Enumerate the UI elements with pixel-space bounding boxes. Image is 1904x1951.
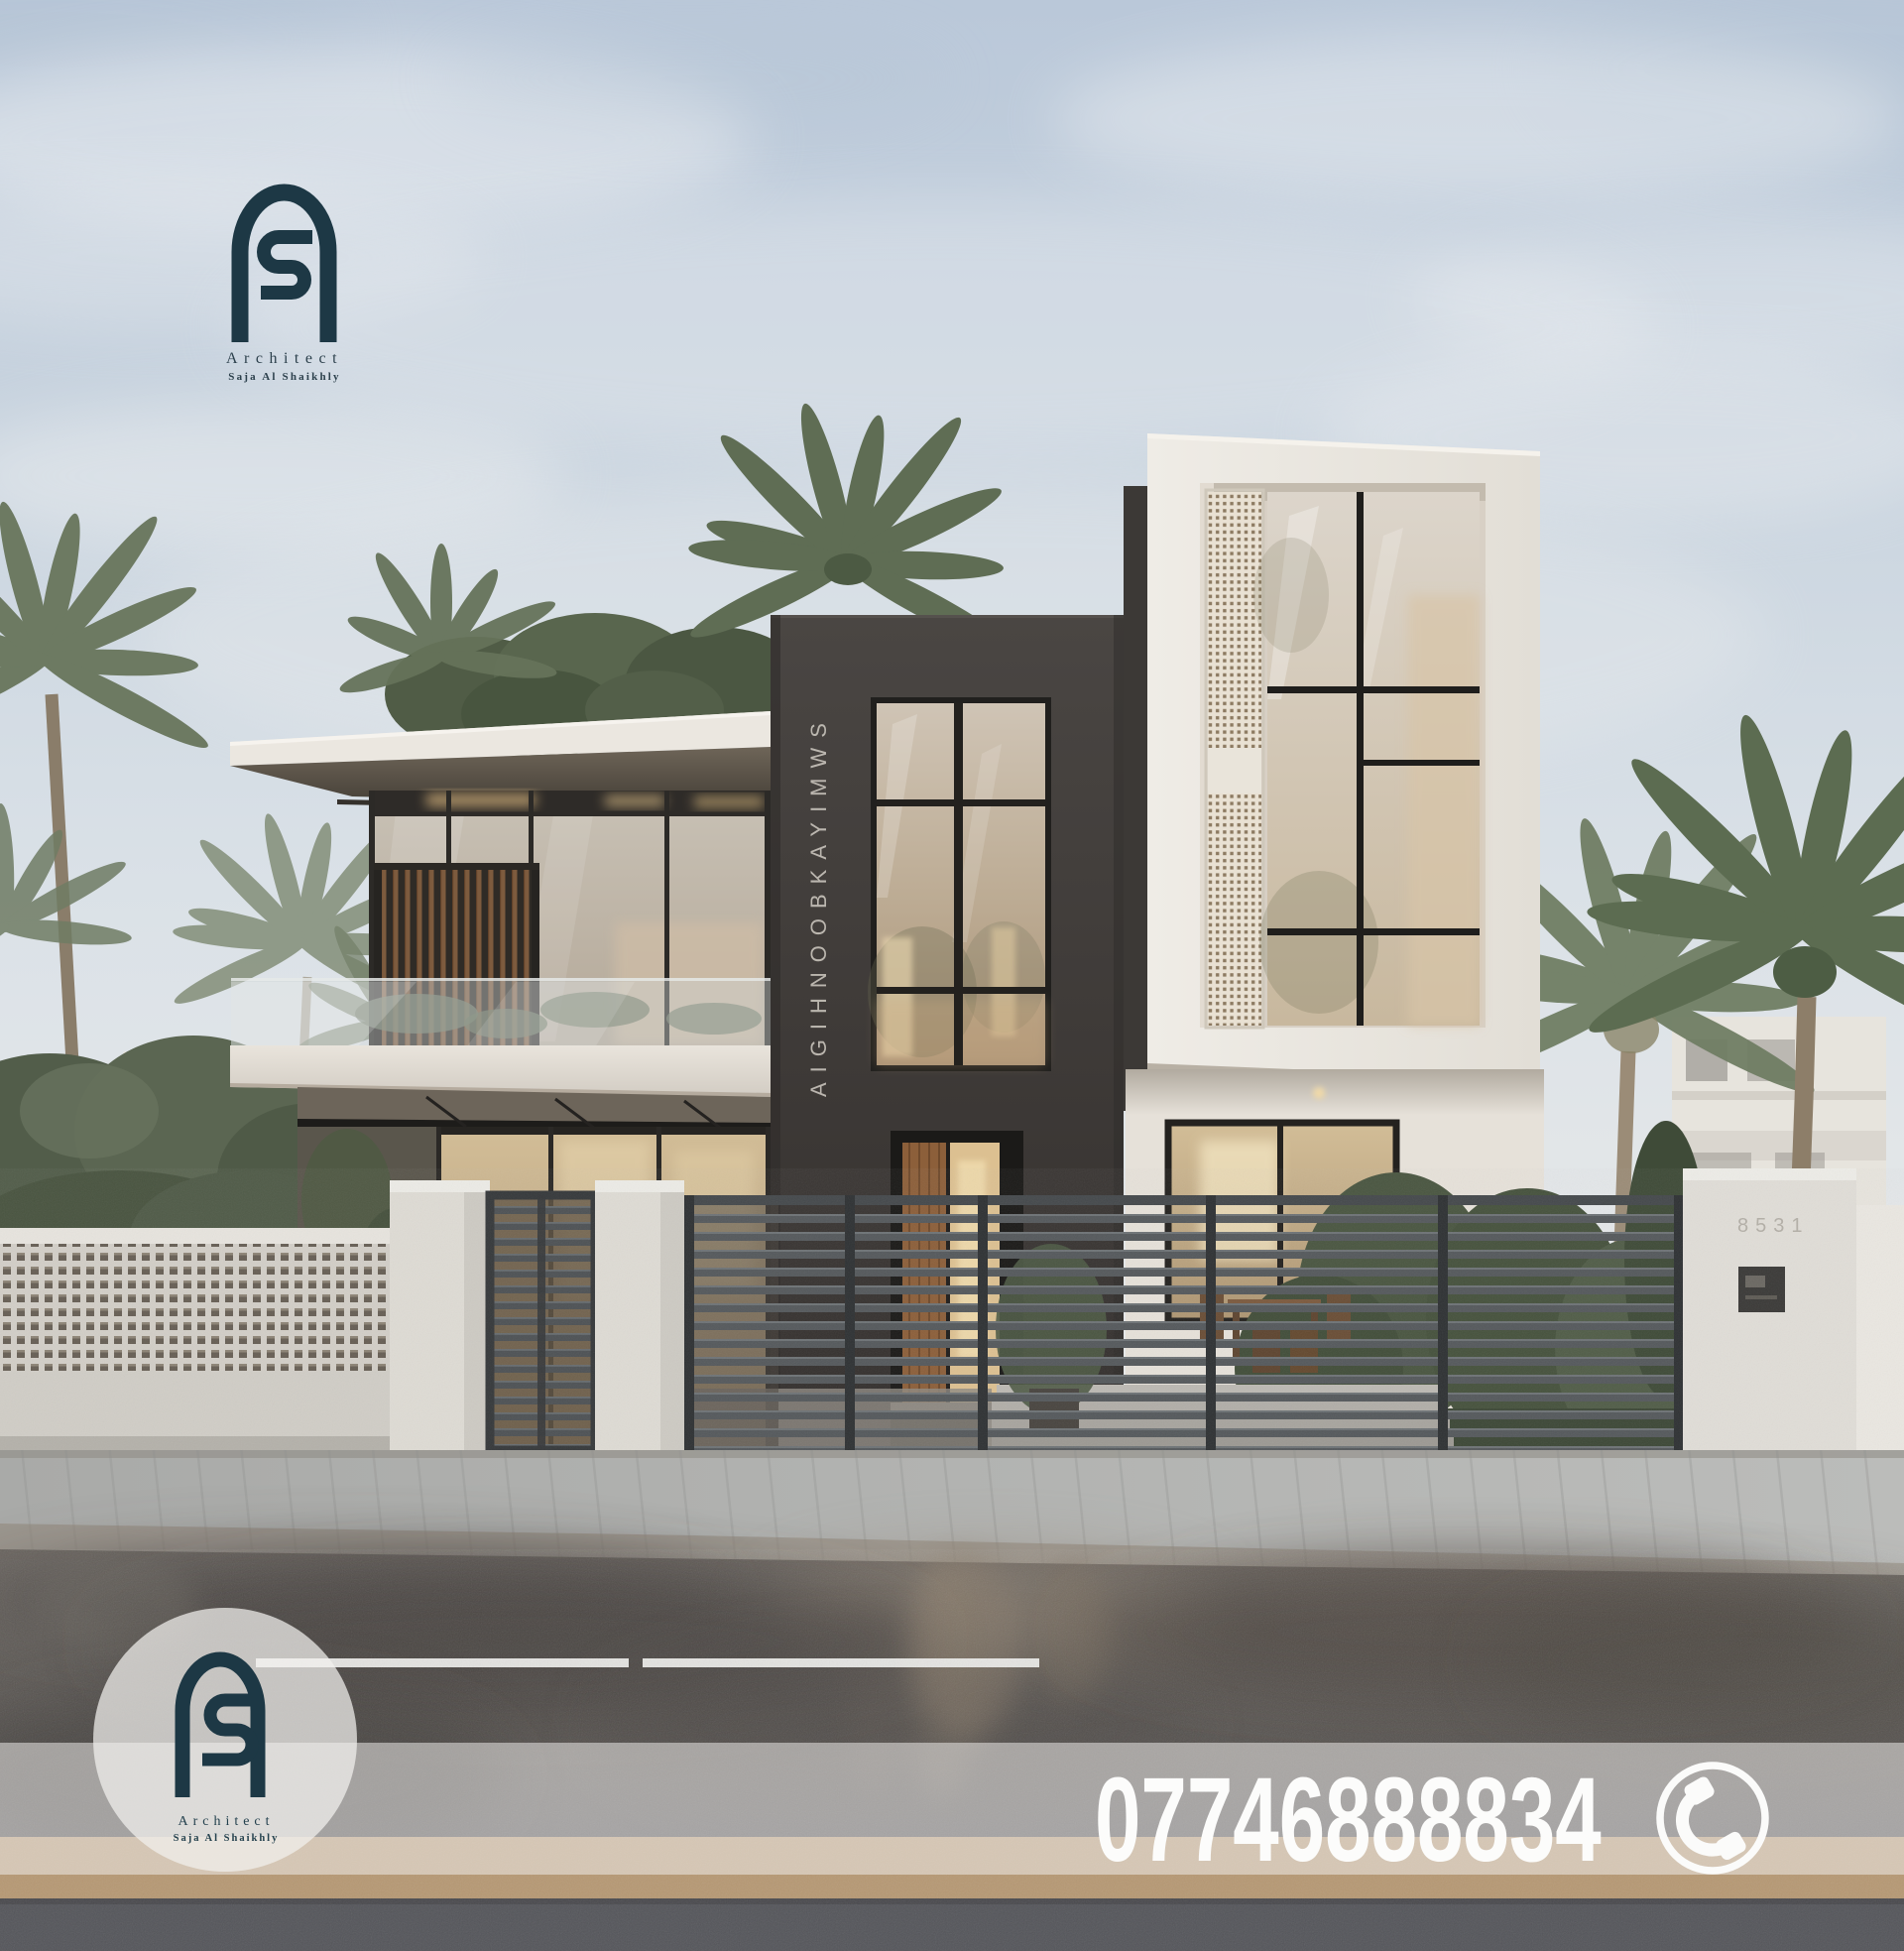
svg-text:Saja Al Shaikhly: Saja Al Shaikhly	[174, 1833, 280, 1844]
svg-text:07746888834: 07746888834	[1095, 1754, 1602, 1888]
svg-text:Architect: Architect	[178, 1814, 274, 1829]
svg-text:AIGIHNOOBKAYIMWS: AIGIHNOOBKAYIMWS	[806, 713, 831, 1097]
svg-text:Saja Al Shaikhly: Saja Al Shaikhly	[228, 371, 340, 383]
svg-text:Architect: Architect	[226, 350, 343, 367]
